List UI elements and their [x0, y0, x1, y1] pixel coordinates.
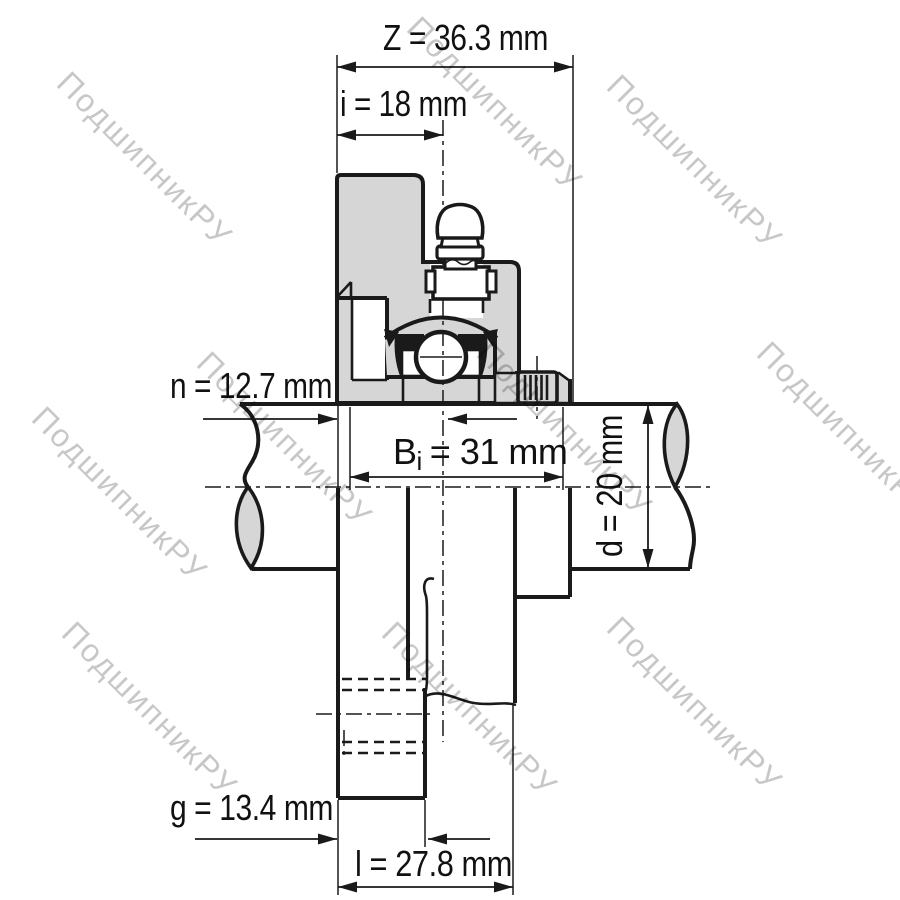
watermark-text: ПодшипникРУ: [375, 614, 565, 804]
watermark-text: ПодшипникРУ: [470, 334, 660, 524]
watermark-text: ПодшипникРУ: [55, 614, 245, 804]
dimension-bi: Bi= 31 mm: [350, 431, 567, 483]
technical-drawing: Z = 36.3 mm i = 18 mm n = 12.7 mm Bi= 31…: [0, 0, 900, 900]
drawing-page: Z = 36.3 mm i = 18 mm n = 12.7 mm Bi= 31…: [0, 0, 900, 900]
watermark-layer: ПодшипникРУ ПодшипникРУ ПодшипникРУ Подш…: [25, 9, 900, 804]
watermark-text: ПодшипникРУ: [25, 399, 215, 589]
nipple-dome: [437, 205, 483, 239]
dimension-i: i = 18 mm: [337, 83, 467, 141]
housing-recess-channel: [352, 298, 387, 380]
watermark-text: ПодшипникРУ: [600, 609, 790, 799]
dimension-g-label: g = 13.4 mm: [170, 787, 333, 828]
dimension-l-label: l = 27.8 mm: [355, 843, 512, 884]
grease-nipple: [426, 205, 496, 300]
watermark-text: ПодшипникРУ: [600, 67, 790, 257]
bolt-hole-hidden-lines: [342, 679, 426, 753]
watermark-text: ПодшипникРУ: [50, 64, 240, 254]
watermark-text: ПодшипникРУ: [750, 334, 900, 524]
dimension-l: l = 27.8 mm: [338, 843, 513, 893]
dimension-i-label: i = 18 mm: [340, 83, 467, 124]
dimension-bi-label: Bi= 31 mm: [393, 431, 567, 476]
